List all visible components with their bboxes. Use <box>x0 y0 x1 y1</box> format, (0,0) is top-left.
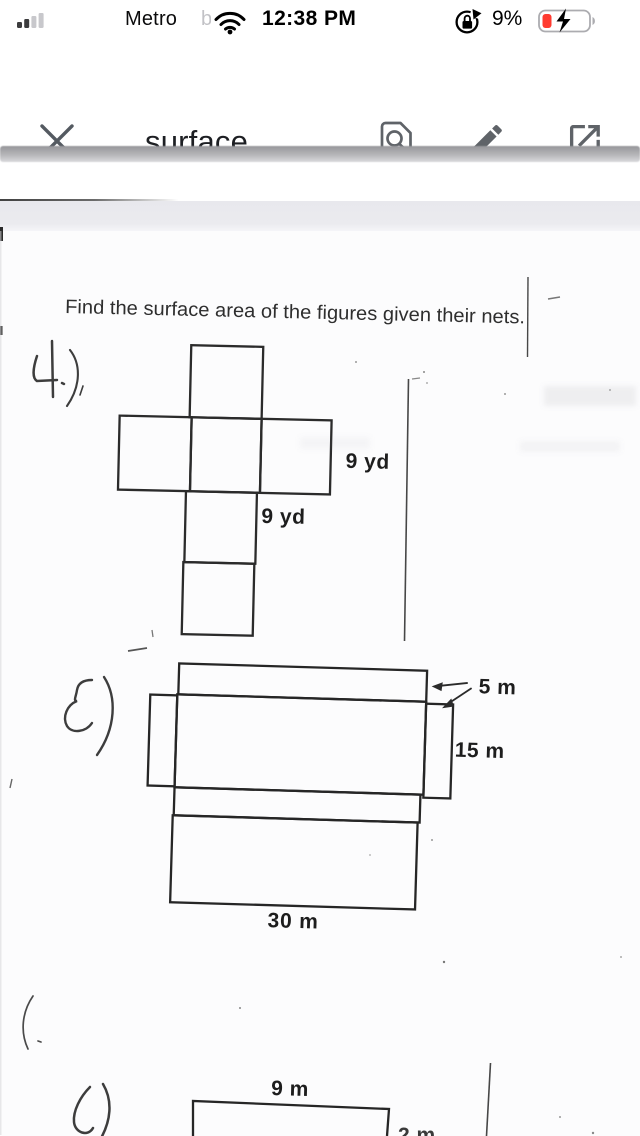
battery-percent-label: 9% <box>492 7 522 31</box>
wifi-icon <box>214 9 246 35</box>
toolbar-shadow <box>0 146 640 162</box>
viewer-toolbar: surface... <box>0 44 640 146</box>
orientation-lock-icon <box>451 7 485 37</box>
carrier-truncated-char: b <box>201 8 211 34</box>
status-bar: Metro b 12:38 PM 9% <box>0 0 640 44</box>
battery-charging-icon <box>537 8 599 34</box>
clock-time: 12:38 PM <box>262 7 356 31</box>
carrier-label: Metro <box>125 8 177 31</box>
cell-signal-icon <box>16 11 48 29</box>
document-page[interactable] <box>0 231 640 1136</box>
viewer-gap-band <box>0 201 640 231</box>
